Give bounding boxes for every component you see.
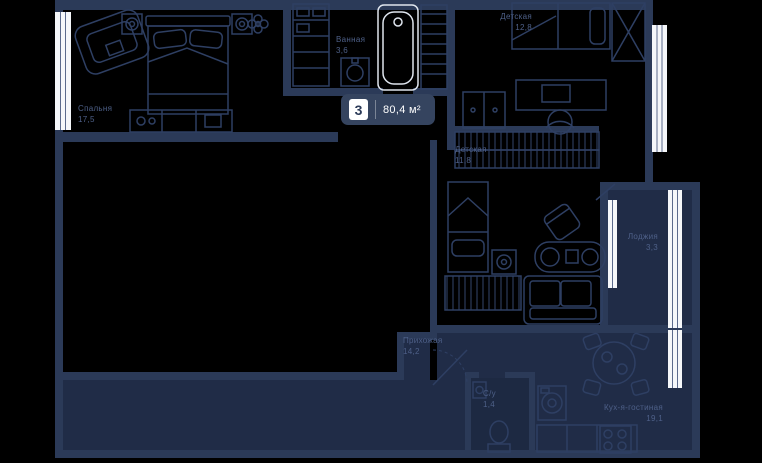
- floor-areas: [63, 190, 692, 452]
- towel-radiator-icon: [421, 5, 447, 89]
- wall-void-bottom: [63, 372, 404, 380]
- double-bed-icon: [146, 16, 230, 114]
- wall-kitchen-top: [437, 325, 700, 333]
- kids1-wardrobe-icon: [612, 3, 645, 61]
- wall-wc-top-a: [465, 372, 479, 378]
- total-area-text: 80,4 м²: [383, 104, 421, 116]
- loggia-inner-window: [608, 200, 617, 288]
- loggia-outer-window: [668, 190, 682, 328]
- sofa-icon: [524, 276, 602, 324]
- wall-wc-right: [529, 372, 535, 452]
- room-name: Прихожая: [403, 336, 442, 345]
- room-name: Кух-я-гостиная: [604, 403, 663, 412]
- kids1-desk-icon: [516, 80, 606, 134]
- speaker-icon: [492, 250, 516, 274]
- wall-rooms-divider: [447, 126, 599, 132]
- room-label-bedroom: Спальня 17,5: [78, 103, 112, 125]
- kids1-dresser-icon: [463, 92, 505, 128]
- wc-floor: [471, 378, 529, 452]
- wall-loggia-left: [600, 182, 608, 330]
- plan-badge: 3 80,4 м²: [341, 94, 435, 125]
- wall-loggia-top: [600, 182, 692, 190]
- bedroom-window: [55, 12, 71, 130]
- wall-right-lower: [692, 182, 700, 458]
- room-name: Лоджия: [628, 232, 658, 241]
- room-label-kitchen: Кух-я-гостиная 19,1: [604, 402, 663, 424]
- wall-bedroom-bottom: [55, 132, 338, 142]
- room-name: Ванная: [336, 35, 365, 44]
- kids2-desk-icon: [535, 242, 605, 272]
- bathtub-icon: [378, 5, 418, 90]
- wall-bedroom-bathroom: [283, 0, 291, 96]
- room-label-hallway: Прихожая 14,2: [403, 335, 442, 357]
- room-area: 1,4: [483, 399, 496, 410]
- room-area: 19,1: [604, 413, 663, 424]
- plant-icon: [248, 15, 268, 33]
- nightstand-lamp-right-icon: [232, 14, 252, 34]
- bathroom-shelf-icon: [293, 4, 329, 86]
- room-name: Спальня: [78, 104, 112, 113]
- room-area: 3,6: [336, 45, 365, 56]
- room-label-kids1: Детская 12,8: [500, 11, 532, 33]
- room-name: Детская: [500, 12, 532, 21]
- room-area: 14,2: [403, 346, 442, 357]
- bookshelf-icon: [445, 276, 521, 310]
- wall-kids2-left: [430, 140, 437, 340]
- wall-bottom: [55, 450, 700, 458]
- wall-kids1-right: [645, 0, 653, 190]
- room-name: С/у: [483, 389, 496, 398]
- room-label-kids2: Детская 11,8: [455, 144, 487, 166]
- bathroom-sink-icon: [341, 58, 369, 86]
- room-area: 12,8: [500, 22, 532, 33]
- kids2-chair-icon: [543, 203, 582, 242]
- rooms-count-box: 3: [349, 99, 368, 120]
- wall-top: [55, 0, 648, 10]
- badge-divider: [375, 100, 376, 119]
- room-area: 3,3: [628, 242, 658, 253]
- room-area: 11,8: [455, 155, 487, 166]
- kids1-window: [652, 25, 667, 152]
- wall-wc-left: [465, 372, 471, 452]
- wall-wc-top-b: [505, 372, 535, 378]
- room-label-loggia: Лоджия 3,3: [628, 231, 658, 253]
- room-name: Детская: [455, 145, 487, 154]
- kids2-bed-icon: [448, 182, 488, 272]
- rug-icon: [72, 7, 151, 77]
- room-area: 17,5: [78, 114, 112, 125]
- floorplan-canvas: Спальня 17,5 Ванная 3,6 Детская 12,8 Дет…: [0, 0, 762, 463]
- room-label-wc: С/у 1,4: [483, 388, 496, 410]
- room-label-bathroom: Ванная 3,6: [336, 34, 365, 56]
- kitchen-window: [668, 330, 682, 388]
